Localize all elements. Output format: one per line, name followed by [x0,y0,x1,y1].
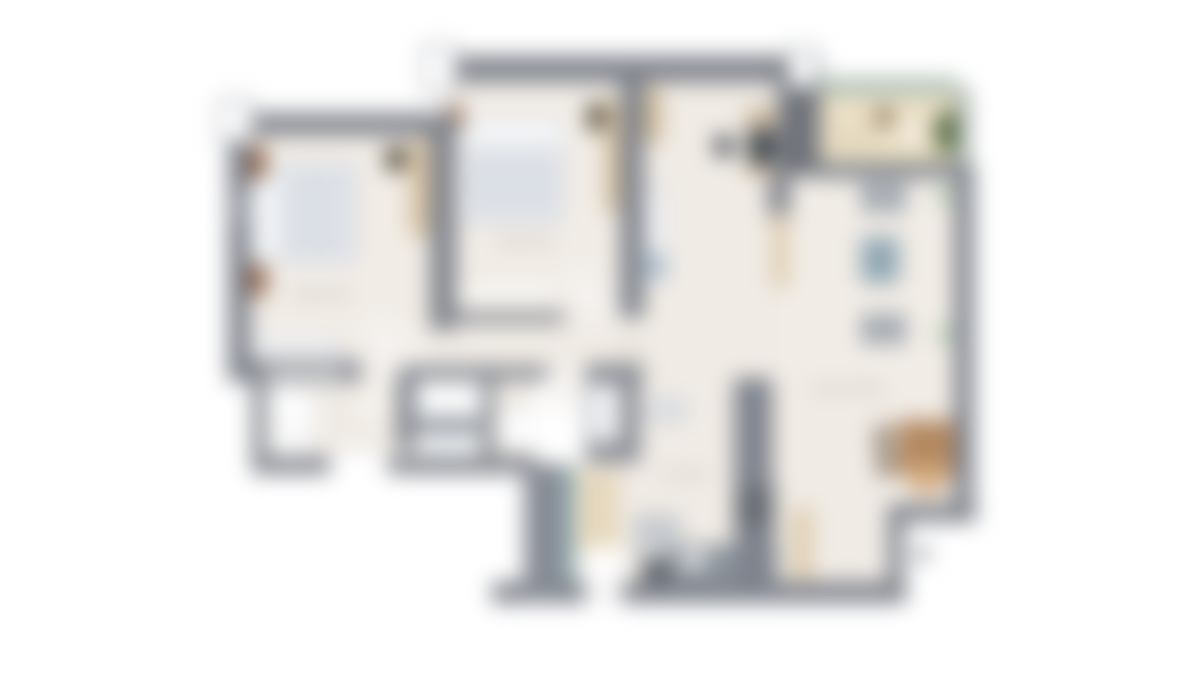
svg-text:BALCONY: BALCONY [834,134,882,145]
svg-text:BEDROOM: BEDROOM [498,236,555,248]
svg-text:LIVING ROOM: LIVING ROOM [810,383,883,395]
svg-text:HALL: HALL [618,344,643,355]
svg-text:KITCHEN: KITCHEN [662,470,706,481]
svg-text:BEDROOM: BEDROOM [294,289,351,301]
